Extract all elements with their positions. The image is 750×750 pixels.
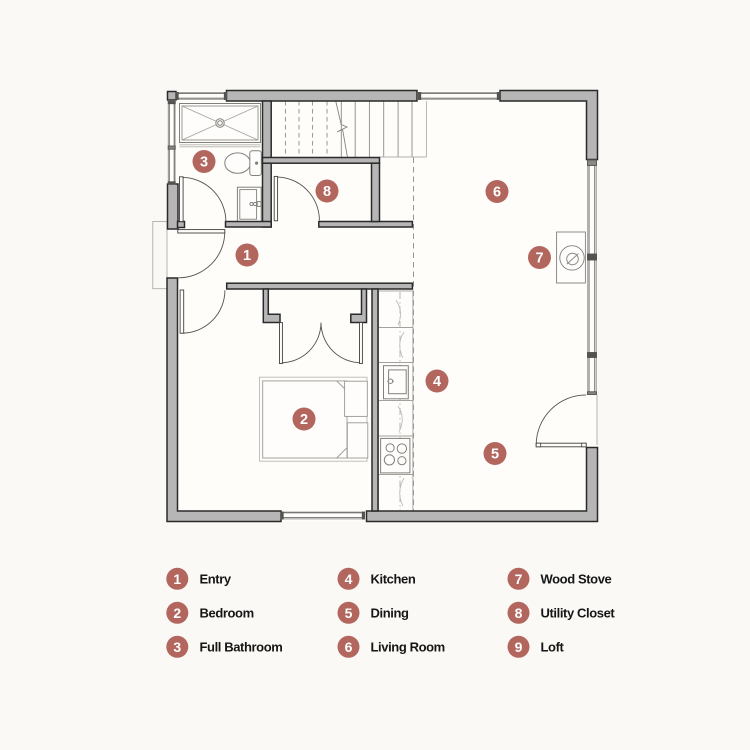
svg-text:6: 6 [345, 639, 353, 655]
svg-text:9: 9 [515, 639, 523, 655]
svg-text:4: 4 [345, 571, 353, 587]
svg-text:1: 1 [173, 571, 181, 587]
svg-text:4: 4 [433, 374, 441, 390]
svg-text:Full Bathroom: Full Bathroom [200, 640, 283, 655]
svg-text:8: 8 [515, 605, 523, 621]
svg-text:Wood Stove: Wood Stove [541, 572, 612, 587]
svg-text:Bedroom: Bedroom [200, 606, 254, 621]
svg-text:6: 6 [493, 185, 501, 201]
svg-text:1: 1 [243, 248, 251, 264]
svg-text:5: 5 [491, 447, 499, 463]
svg-text:8: 8 [323, 184, 331, 200]
svg-text:Entry: Entry [200, 572, 232, 587]
svg-text:2: 2 [173, 605, 181, 621]
svg-text:Dining: Dining [371, 606, 409, 621]
svg-text:Loft: Loft [541, 640, 565, 655]
svg-text:7: 7 [535, 251, 543, 267]
svg-text:5: 5 [345, 605, 353, 621]
svg-text:3: 3 [200, 155, 208, 171]
svg-text:3: 3 [173, 639, 181, 655]
svg-text:Utility Closet: Utility Closet [541, 606, 616, 621]
svg-text:Kitchen: Kitchen [371, 572, 416, 587]
svg-text:7: 7 [515, 571, 523, 587]
svg-text:Living Room: Living Room [371, 640, 445, 655]
svg-text:2: 2 [300, 412, 308, 428]
